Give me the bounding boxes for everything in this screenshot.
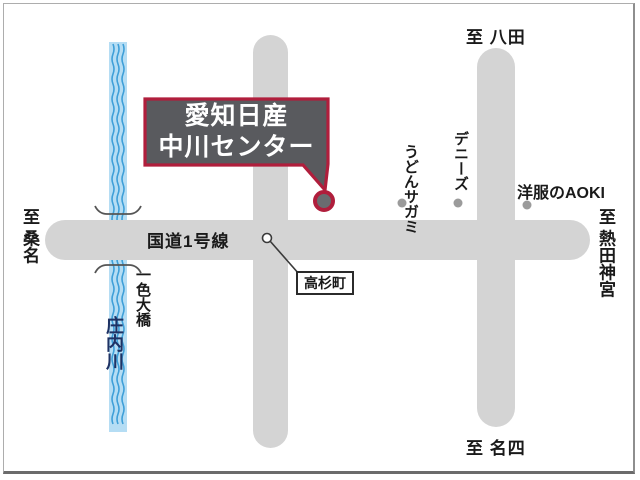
leader-line [270, 241, 299, 274]
intersection-label: 高杉町 [296, 271, 354, 295]
landmark-dot [454, 199, 463, 208]
direction-label-south: 至 名四 [466, 434, 526, 459]
bridge-name-label: 一色大橋 [132, 267, 153, 327]
landmark-udon-sagami: うどんサガミ [402, 144, 418, 196]
dealer-callout-line1: 愛知日産 [184, 101, 288, 132]
dealer-callout: 愛知日産 中川センター [143, 97, 330, 166]
landmark-aoki: 洋服のAOKI [517, 179, 605, 203]
map-marks [0, 0, 640, 480]
direction-label-east: 至 熱田神宮 [593, 208, 618, 298]
route1-label: 国道1号線 [147, 227, 229, 252]
direction-label-west: 至 桑名 [17, 208, 42, 264]
river-name-label: 庄内川 [101, 316, 127, 370]
landmark-dennys: デニーズ [450, 131, 471, 191]
location-marker-icon [315, 192, 333, 210]
direction-label-north: 至 八田 [466, 23, 526, 48]
intersection-marker-icon [263, 234, 272, 243]
bridge-marks-icon [95, 206, 141, 273]
dealer-callout-line2: 中川センター [158, 132, 314, 163]
access-map: 愛知日産 中川センター 国道1号線 至 八田 至 名四 至 桑名 至 熱田神宮 … [0, 0, 640, 480]
intersection-name: 高杉町 [304, 273, 346, 293]
